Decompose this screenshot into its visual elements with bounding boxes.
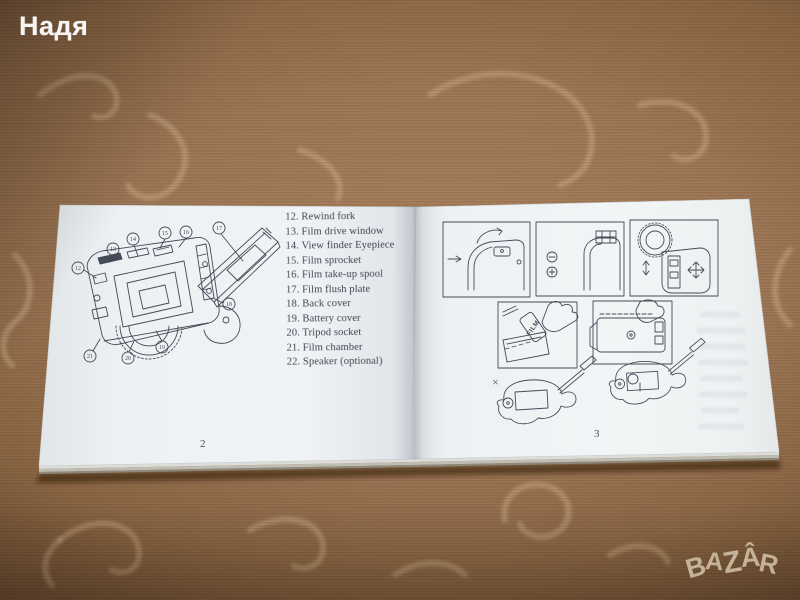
page-bleedthrough-line: [700, 312, 740, 317]
callout-number: 21: [87, 354, 93, 360]
callout-number: 14: [130, 237, 136, 243]
parts-list-item: 21. Film chamber: [287, 340, 417, 356]
parts-list-item: 22. Speaker (optional): [287, 354, 417, 370]
parts-list: 12. Rewind fork 13. Film drive window 14…: [285, 209, 417, 370]
page-bleedthrough-line: [699, 344, 745, 349]
left-page-number: 2: [200, 438, 206, 450]
callout-number: 20: [125, 356, 131, 362]
page-bleedthrough-line: [698, 360, 748, 365]
logo-letter: R: [757, 549, 781, 578]
callout-number: 12: [75, 266, 81, 272]
parts-list-item: 16. Film take-up spool: [286, 267, 416, 283]
callout-number: 17: [216, 226, 222, 232]
parts-list-item: 14. View finder Eyepiece: [285, 238, 415, 254]
parts-list-item: 17. Film flush plate: [286, 282, 416, 298]
callout-number: 19: [159, 345, 165, 351]
callout-number: 18: [226, 302, 232, 308]
page-bleedthrough-line: [701, 408, 739, 413]
callout-number: 15: [162, 231, 168, 237]
page-bleedthrough-line: [699, 392, 747, 397]
parts-list-item: 12. Rewind fork: [285, 209, 415, 225]
page-bleedthrough-line: [698, 424, 744, 429]
parts-list-item: 20. Tripod socket: [286, 325, 416, 341]
product-photo-scene: 12 13 14 15 16 17 18 19 20 21: [0, 0, 800, 600]
parts-list-item: 19. Battery cover: [286, 311, 416, 327]
callout-number: 13: [110, 247, 116, 253]
parts-list-item: 15. Film sprocket: [286, 253, 416, 269]
right-page-number: 3: [594, 428, 600, 440]
parts-list-item: 18. Back cover: [286, 296, 416, 312]
page-bleedthrough-line: [700, 376, 742, 381]
page-bleedthrough-line: [697, 328, 745, 333]
callout-number: 16: [183, 230, 189, 236]
marketplace-logo-watermark: BAZÂR: [685, 545, 780, 578]
wrong-mark: ×: [492, 375, 499, 389]
seller-name-watermark: Надя: [19, 11, 88, 42]
parts-list-item: 13. Film drive window: [285, 224, 415, 240]
